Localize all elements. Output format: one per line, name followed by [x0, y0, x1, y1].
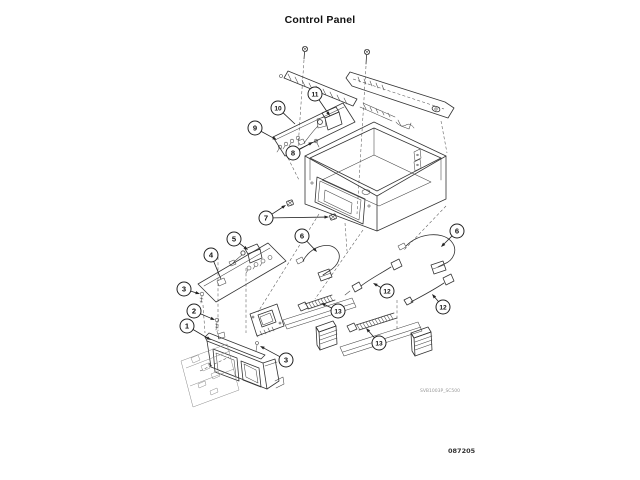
- callout-number: 13: [334, 309, 342, 316]
- callout-1: 1: [180, 319, 211, 340]
- figure-number: 087205: [448, 447, 475, 455]
- trim-strip-large: [346, 72, 454, 129]
- ribbon-cable-right: [347, 313, 397, 332]
- callout-13: 13: [366, 328, 386, 350]
- bracket-screw: [314, 139, 319, 147]
- callout-4: 4: [204, 248, 221, 279]
- callout-number: 11: [312, 92, 319, 99]
- callout-13: 13: [321, 303, 345, 318]
- exploded-diagram: 12334566789101112121313: [0, 0, 640, 480]
- callout-12: 12: [373, 283, 394, 298]
- cabinet-top: [305, 122, 446, 231]
- callout-12: 12: [432, 294, 450, 314]
- console-housing: [205, 332, 284, 389]
- callout-11: 11: [308, 87, 330, 116]
- fascia-overlay: [181, 344, 239, 407]
- callout-number: 9: [253, 124, 257, 133]
- chassis-bars: [283, 298, 422, 356]
- callout-number: 6: [300, 232, 304, 241]
- callout-number: 3: [284, 356, 288, 365]
- callout-number: 6: [455, 227, 459, 236]
- callout-number: 12: [439, 305, 447, 312]
- callout-number: 12: [383, 289, 391, 296]
- jumper-cable-right: [404, 274, 454, 305]
- callout-6: 6: [295, 229, 317, 252]
- top-screws: [302, 46, 369, 64]
- terminal-block-left: [316, 321, 337, 350]
- display-board: [250, 304, 284, 337]
- housing-screw: [256, 342, 259, 352]
- callout-3: 3: [260, 346, 293, 367]
- callout-3: 3: [177, 282, 200, 296]
- wire-harness-left: [296, 245, 339, 281]
- diagram-page: Control Panel: [0, 0, 640, 480]
- callout-number: 8: [291, 149, 295, 158]
- wire-harness-right: [398, 235, 455, 274]
- callout-number: 2: [192, 307, 196, 316]
- drawing-code: SVB1003P_SC500: [420, 389, 460, 394]
- callout-number: 10: [274, 106, 282, 113]
- switch-bracket-assembly: [273, 103, 355, 156]
- callout-5: 5: [227, 232, 248, 250]
- callout-10: 10: [271, 101, 295, 124]
- callout-2: 2: [187, 304, 215, 320]
- plate-screw: [200, 292, 204, 303]
- plate-buttons: [246, 256, 272, 274]
- ribbon-cable-left: [298, 295, 335, 311]
- callout-number: 7: [264, 214, 268, 223]
- callout-number: 3: [182, 285, 186, 294]
- callout-number: 13: [375, 341, 383, 348]
